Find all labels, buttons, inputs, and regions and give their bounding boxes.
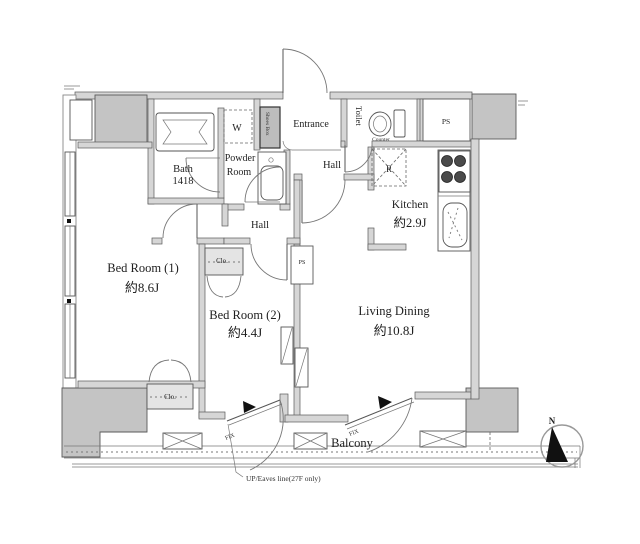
toilet-counter-label: Counter <box>372 137 390 143</box>
powder-room-label-2: Room <box>227 167 252 178</box>
bedroom1-door <box>163 204 197 238</box>
bedroom2-size-label: 約4.4J <box>228 325 262 340</box>
shoes-box-label: Shoes Box <box>264 112 270 136</box>
compass-needle-icon <box>546 427 568 462</box>
window-left-1 <box>65 152 75 216</box>
column-bottom-left <box>62 388 147 457</box>
balcony-vent-2 <box>294 433 327 449</box>
washer-label: W <box>232 123 242 134</box>
ps-top-label: PS <box>442 117 450 126</box>
hall-lower-label: Hall <box>251 220 269 231</box>
entrance-door <box>283 49 327 93</box>
closet1-label: Clo. <box>164 393 176 401</box>
closet-bedroom1 <box>147 360 193 409</box>
balcony-label: Balcony <box>331 436 373 450</box>
compass: N <box>541 416 583 467</box>
eaves-leader-line <box>228 424 243 477</box>
meter-box <box>70 100 92 140</box>
entrance-label: Entrance <box>293 119 329 130</box>
entrance-step <box>283 141 341 150</box>
bedroom2-door <box>251 244 287 280</box>
balcony-vent-1 <box>163 433 202 449</box>
column-top-left <box>95 95 147 143</box>
balcony-vent-3 <box>420 431 466 447</box>
mullion-block <box>67 299 71 303</box>
vanity <box>258 152 286 204</box>
living-dining-size-label: 約10.8J <box>374 323 415 338</box>
window-left-3 <box>65 304 75 378</box>
bath-size-label: 1418 <box>173 176 194 187</box>
closet-bedroom2 <box>205 248 243 297</box>
hall-upper-label: Hall <box>323 160 341 171</box>
floor-plan-image: N Bath 1418 W Powder Room Entrance Shoes… <box>0 0 640 544</box>
balcony-door-1 <box>227 400 283 470</box>
swing-arrow-icon <box>243 401 256 413</box>
bedroom1-label: Bed Room (1) <box>107 261 179 275</box>
compass-north-label: N <box>549 416 556 426</box>
kitchen-sink <box>443 203 467 247</box>
micro-note-marks <box>64 86 80 89</box>
toilet-label: Toilet <box>354 106 364 126</box>
bathtub <box>156 113 214 151</box>
bath-label: Bath <box>173 164 194 175</box>
toilet-fixture <box>369 110 405 137</box>
mullion-block <box>67 219 71 223</box>
ps-mid-label: PS <box>299 260 306 266</box>
kitchen-counter <box>438 150 470 251</box>
bedroom1-size-label: 約8.6J <box>125 280 159 295</box>
hall-living-door <box>302 180 345 223</box>
column-top-right <box>472 94 516 139</box>
closet2-label: Clo. <box>216 257 228 265</box>
living-dining-label: Living Dining <box>358 304 430 318</box>
window-left-2 <box>65 226 75 296</box>
kitchen-label: Kitchen <box>392 199 429 211</box>
column-tick-marks <box>518 101 528 105</box>
floor-plan-svg: N Bath 1418 W Powder Room Entrance Shoes… <box>0 0 640 544</box>
bedroom2-label: Bed Room (2) <box>209 308 281 322</box>
kitchen-size-label: 約2.9J <box>394 215 427 230</box>
powder-room-label-1: Powder <box>225 153 256 164</box>
fridge-label: R <box>386 164 392 174</box>
eaves-note-label: UP/Eaves line(27F only) <box>246 474 321 483</box>
